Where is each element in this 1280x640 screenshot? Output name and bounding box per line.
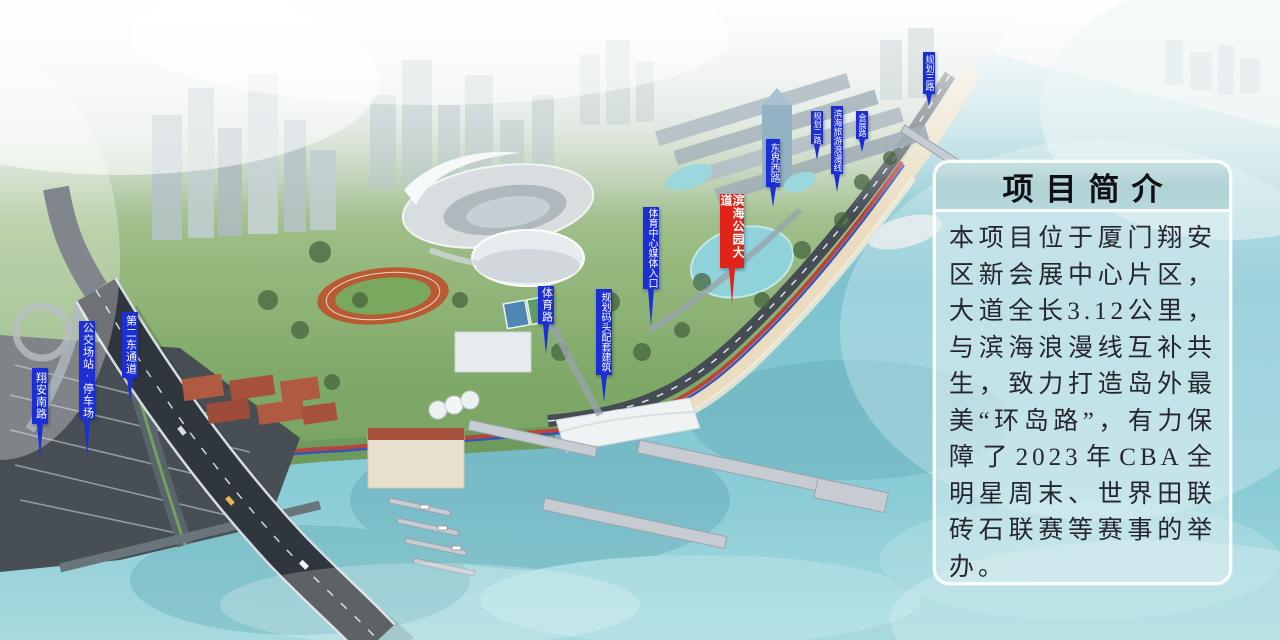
label-text: 规划三路 xyxy=(925,55,934,91)
panel-title: 项目简介 xyxy=(991,164,1175,209)
aerial-project-rendering: 翔安南路 公交场站·停车场 第二东通道 体育路 规划码头配套建筑 体育中心媒体入… xyxy=(0,0,1280,640)
label-text: 规划码头配套建筑 xyxy=(599,292,609,372)
map-label-planned-wharf-buildings: 规划码头配套建筑 xyxy=(596,289,612,375)
label-text: 第二东通道 xyxy=(125,315,136,375)
map-label-dongjie-west-road: 东界西路 xyxy=(766,139,780,187)
map-label-second-east-passage: 第二东通道 xyxy=(122,312,138,378)
map-label-planned-road-3: 规划三路 xyxy=(923,52,935,94)
map-label-sports-road: 体育路 xyxy=(538,286,554,324)
map-label-binhai-park-avenue: 滨海公园大道 xyxy=(720,194,744,268)
label-text: 翔安南路 xyxy=(35,372,46,420)
label-text: 会展路 xyxy=(858,113,866,137)
label-text: 公交场站·停车场 xyxy=(82,322,93,419)
label-text: 体育路 xyxy=(541,287,552,323)
label-text: 规划二路 xyxy=(813,112,821,144)
label-text: 滨海旅游浪漫线 xyxy=(833,109,842,172)
label-text: 东界西路 xyxy=(768,143,778,183)
map-label-binhai-tourism-romantic-line: 滨海旅游浪漫线 xyxy=(831,106,843,174)
label-text: 滨海公园大道 xyxy=(720,194,744,268)
label-text: 体育中心媒体入口 xyxy=(646,208,656,288)
project-intro-panel: 项目简介 本项目位于厦门翔安区新会展中心片区，大道全长3.12公里，与滨海浪漫线… xyxy=(933,160,1232,585)
map-label-exhibition-road: 会展路 xyxy=(856,111,868,139)
panel-text: 本项目位于厦门翔安区新会展中心片区，大道全长3.12公里，与滨海浪漫线互补共生，… xyxy=(949,221,1216,585)
map-label-sports-center-media-entrance: 体育中心媒体入口 xyxy=(643,207,659,289)
map-label-bus-station-parking: 公交场站·停车场 xyxy=(79,321,95,419)
map-label-planned-road-2: 规划二路 xyxy=(811,111,823,144)
map-label-xiangan-south-road: 翔安南路 xyxy=(32,368,48,424)
panel-header: 项目简介 xyxy=(936,163,1229,212)
panel-body: 本项目位于厦门翔安区新会展中心片区，大道全长3.12公里，与滨海浪漫线互补共生，… xyxy=(936,212,1229,585)
